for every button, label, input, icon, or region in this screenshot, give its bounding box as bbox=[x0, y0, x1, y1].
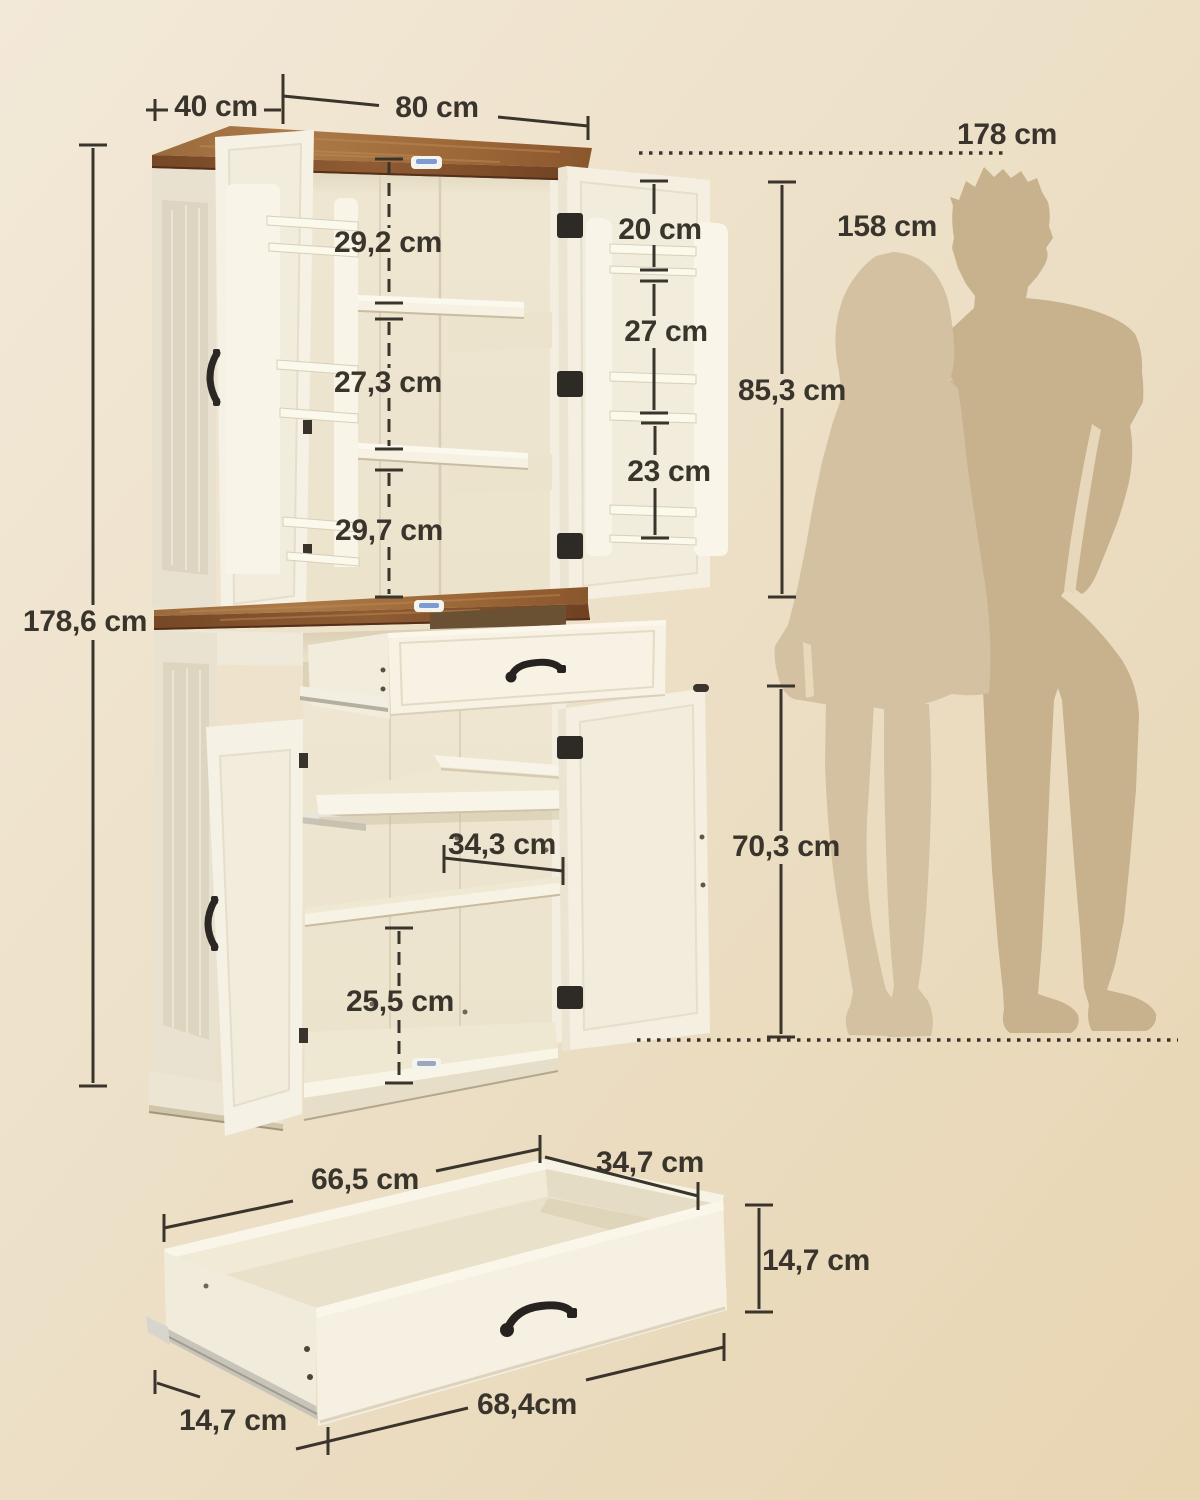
svg-text:85,3 cm: 85,3 cm bbox=[738, 374, 846, 407]
svg-text:27,3 cm: 27,3 cm bbox=[334, 366, 442, 399]
svg-text:25,5 cm: 25,5 cm bbox=[346, 985, 454, 1018]
svg-text:27 cm: 27 cm bbox=[624, 315, 708, 348]
svg-text:40 cm: 40 cm bbox=[174, 90, 258, 123]
svg-text:23 cm: 23 cm bbox=[627, 455, 711, 488]
svg-text:34,7 cm: 34,7 cm bbox=[596, 1146, 704, 1179]
svg-text:20 cm: 20 cm bbox=[618, 213, 702, 246]
svg-text:66,5 cm: 66,5 cm bbox=[311, 1163, 419, 1196]
svg-text:70,3 cm: 70,3 cm bbox=[732, 830, 840, 863]
svg-text:178,6 cm: 178,6 cm bbox=[23, 605, 147, 638]
svg-text:68,4cm: 68,4cm bbox=[477, 1388, 577, 1421]
svg-text:34,3 cm: 34,3 cm bbox=[448, 828, 556, 861]
svg-text:14,7 cm: 14,7 cm bbox=[179, 1404, 287, 1437]
svg-text:80 cm: 80 cm bbox=[395, 91, 479, 124]
svg-text:29,7 cm: 29,7 cm bbox=[335, 514, 443, 547]
svg-text:29,2 cm: 29,2 cm bbox=[334, 226, 442, 259]
svg-text:158 cm: 158 cm bbox=[837, 210, 937, 243]
svg-text:178 cm: 178 cm bbox=[957, 118, 1057, 151]
svg-text:14,7 cm: 14,7 cm bbox=[762, 1244, 870, 1277]
